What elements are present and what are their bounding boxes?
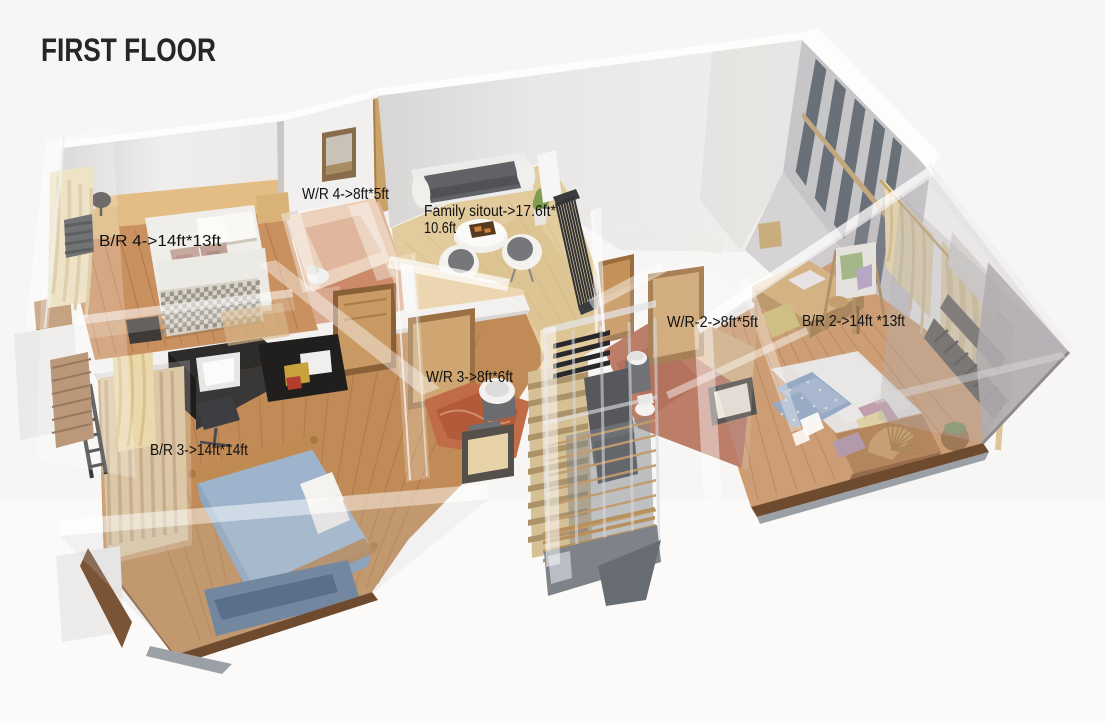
svg-text:W/R-2->8ft*5ft: W/R-2->8ft*5ft [667,314,759,331]
svg-text:B/R 4->14ft*13ft: B/R 4->14ft*13ft [99,233,222,250]
svg-text:B/R 2->14ft *13ft: B/R 2->14ft *13ft [802,313,906,330]
svg-text:FIRST FLOOR: FIRST FLOOR [41,32,216,68]
svg-text:W/R 3->8ft*6ft: W/R 3->8ft*6ft [426,369,514,386]
svg-text:B/R 3->14ft*14ft: B/R 3->14ft*14ft [150,442,249,459]
svg-text:W/R 4->8ft*5ft: W/R 4->8ft*5ft [302,186,390,203]
svg-text:10.6ft: 10.6ft [424,220,457,237]
svg-text:Family sitout->17.6ft*: Family sitout->17.6ft* [424,203,556,220]
